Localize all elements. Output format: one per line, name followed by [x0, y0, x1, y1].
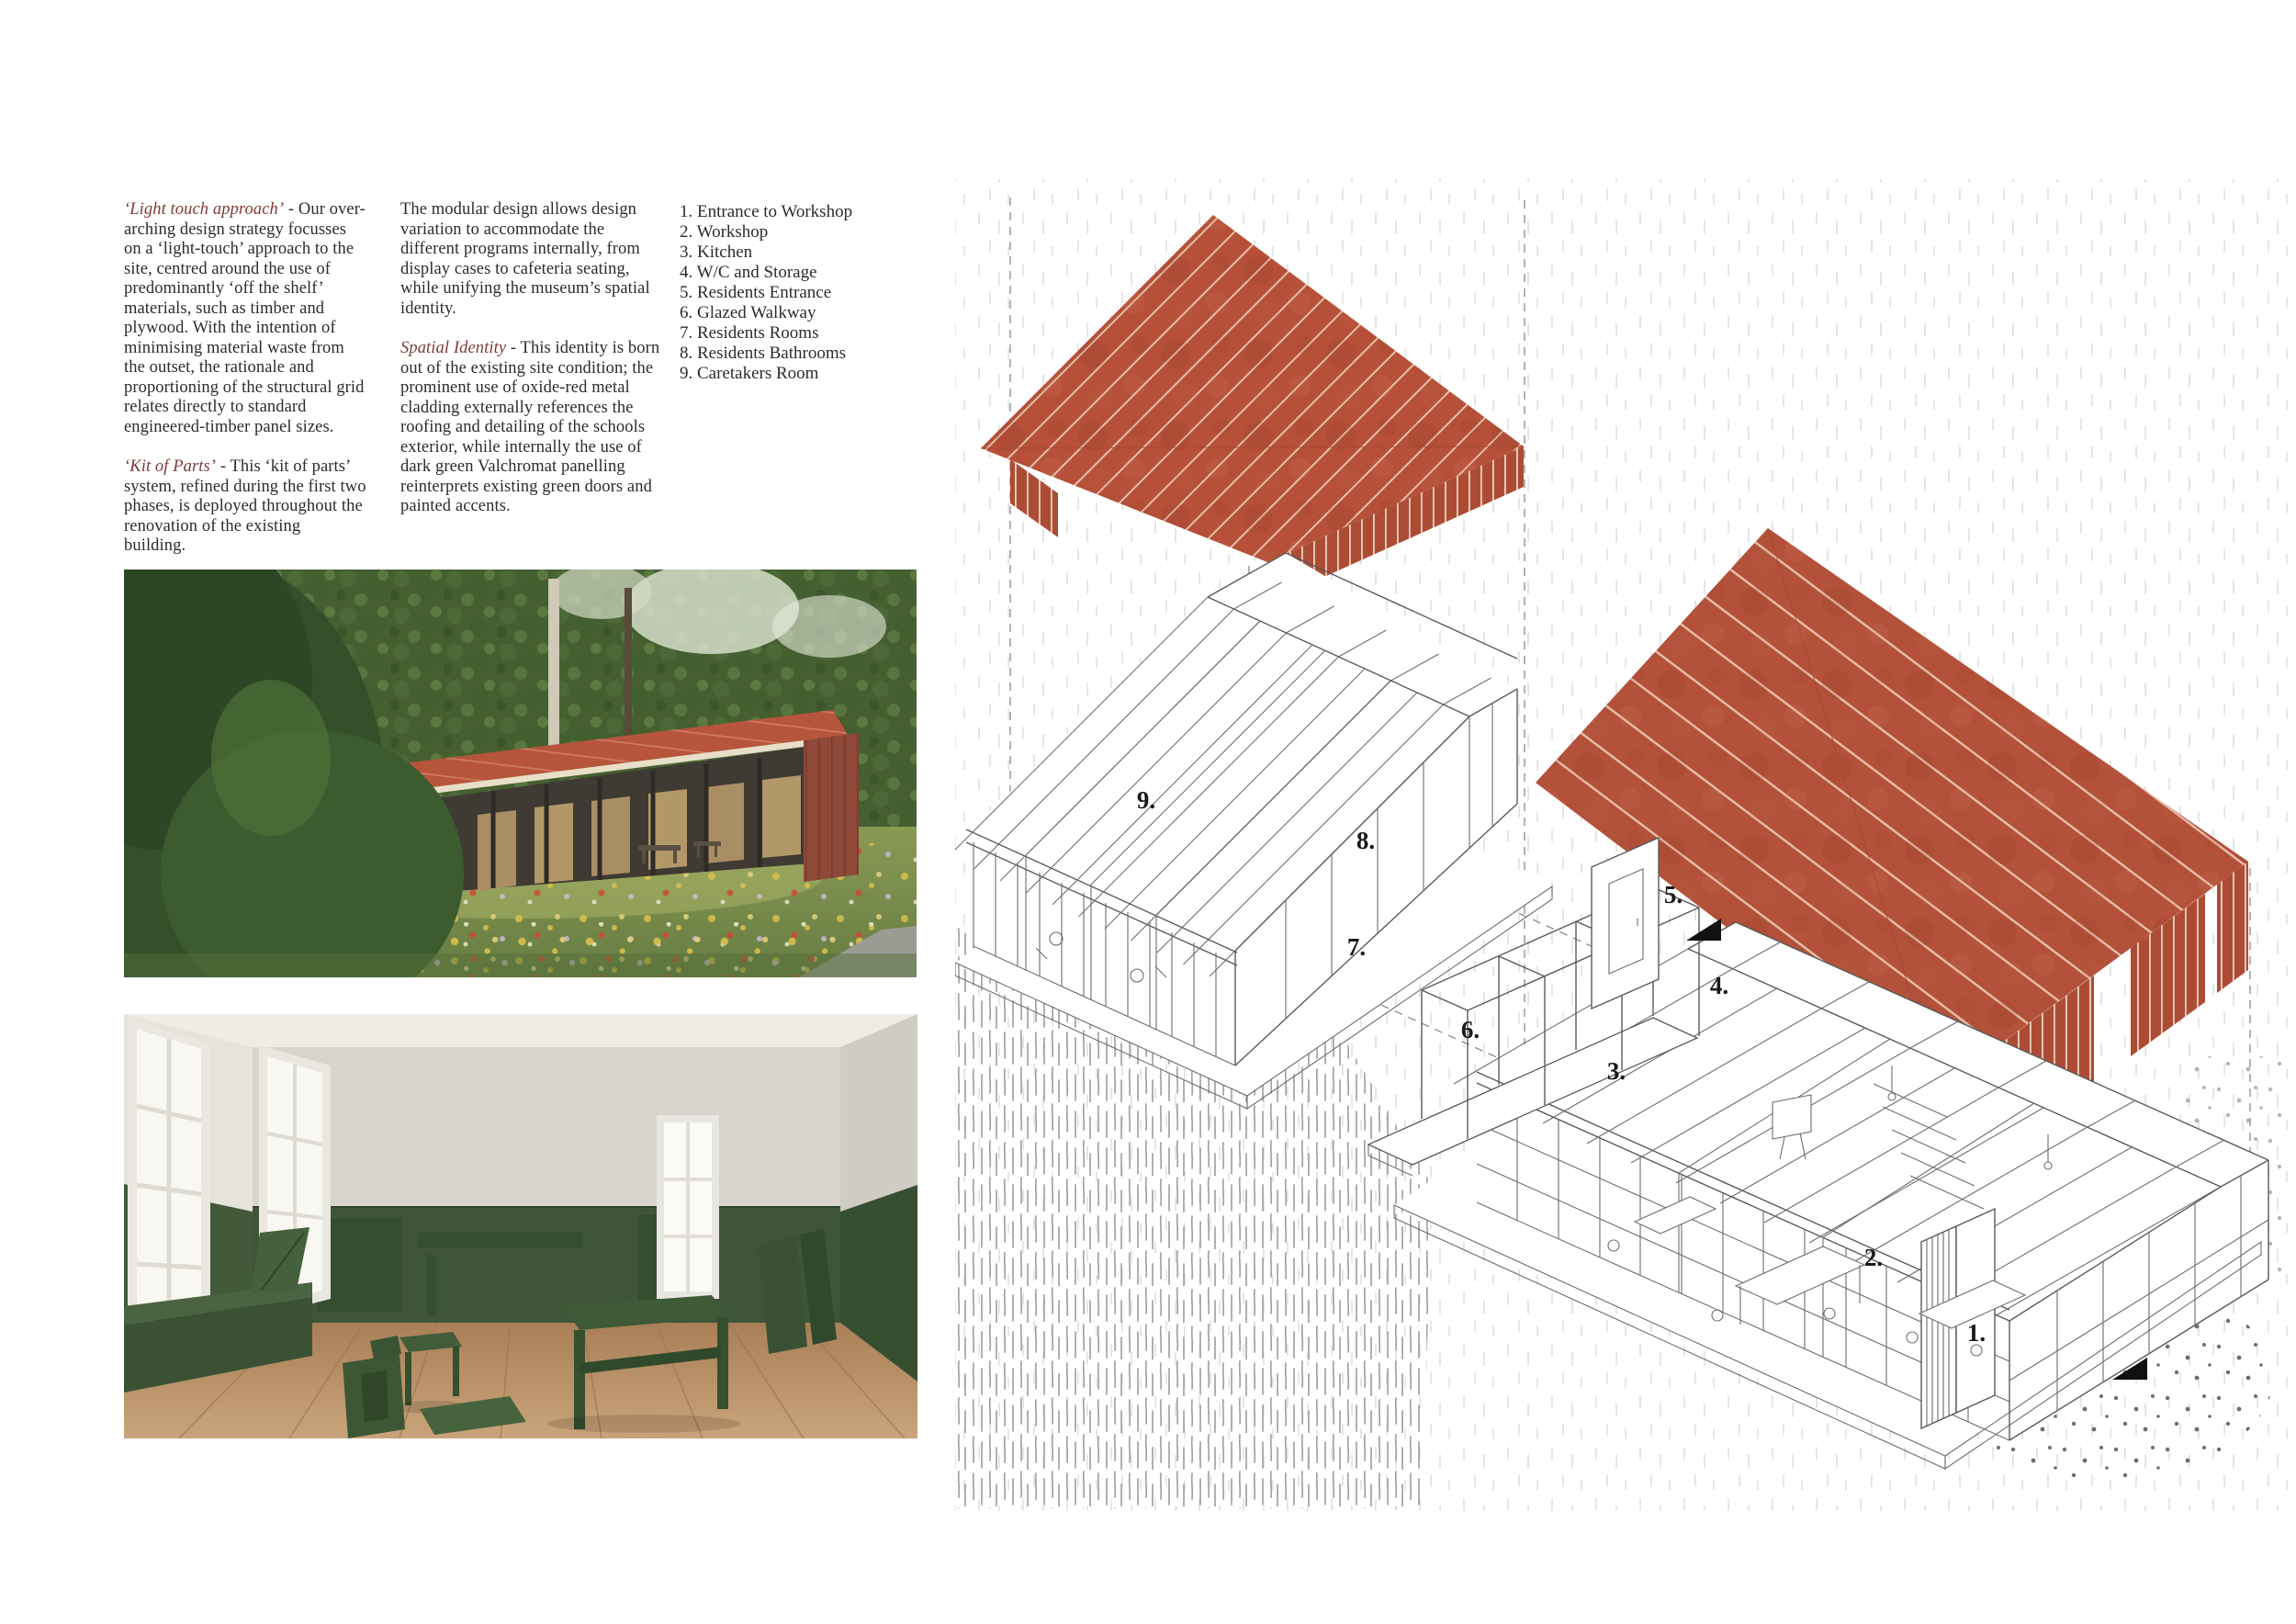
label-entrance-workshop: 1.: [1967, 1319, 1986, 1347]
back-window: [657, 1115, 719, 1299]
paragraph-lead: Spatial Identity: [400, 339, 506, 357]
birch-trunk: [548, 579, 559, 767]
paragraph-body: - This identity is born out of the exist…: [400, 339, 659, 515]
label-residents-rooms: 7.: [1347, 933, 1366, 961]
site-render-graphic: [124, 570, 917, 977]
legend-item: 7. Residents Rooms: [680, 323, 928, 344]
paragraph-lead: ‘Light touch approach’: [124, 200, 284, 219]
paragraph-body: - Our over-arching design strategy focus…: [124, 200, 366, 436]
legend-item: 5. Residents Entrance: [680, 283, 928, 303]
paragraph-body: The modular design allows design variati…: [400, 200, 650, 318]
legend-item: 9. Caretakers Room: [680, 364, 928, 384]
intro-paragraph: ‘Kit of Parts’ - This ‘kit of parts’ sys…: [124, 457, 366, 557]
intro-column-2: The modular design allows design variati…: [400, 200, 665, 537]
label-residents-entrance: 5.: [1664, 881, 1683, 908]
label-workshop: 2.: [1864, 1244, 1883, 1271]
room-legend: 1. Entrance to Workshop 2. Workshop 3. K…: [680, 202, 928, 384]
label-caretakers-room: 9.: [1137, 786, 1155, 814]
intro-paragraph: Spatial Identity - This identity is born…: [400, 339, 665, 517]
ceiling: [124, 1014, 917, 1047]
paragraph-lead: ‘Kit of Parts’: [124, 457, 216, 476]
tree-trunk: [625, 588, 632, 744]
site-render-photo: [124, 570, 917, 977]
leaning-panels: [758, 1229, 837, 1354]
legend-item: 1. Entrance to Workshop: [680, 202, 928, 222]
residents-entrance-panel: [1592, 838, 1659, 1009]
presentation-board: ‘Light touch approach’ - Our over-archin…: [0, 0, 2296, 1624]
intro-column-1: ‘Light touch approach’ - Our over-archin…: [124, 200, 366, 577]
intro-paragraph: ‘Light touch approach’ - Our over-archin…: [124, 200, 366, 437]
legend-item: 2. Workshop: [680, 222, 928, 242]
legend-item: 6. Glazed Walkway: [680, 303, 928, 323]
label-residents-bathrooms: 8.: [1356, 827, 1375, 854]
legend-item: 3. Kitchen: [680, 242, 928, 263]
axonometric-panel: 9. 8. 7. 6. 5. 4. 3. 2. 1.: [955, 179, 2296, 1511]
legend-item: 8. Residents Bathrooms: [680, 344, 928, 364]
label-wc-storage: 4.: [1710, 972, 1728, 999]
interior-render-photo: [124, 1014, 917, 1438]
label-glazed-walkway: 6.: [1461, 1016, 1480, 1043]
interior-render-graphic: [124, 1014, 917, 1438]
legend-item: 4. W/C and Storage: [680, 263, 928, 283]
axonometric-drawing: 9. 8. 7. 6. 5. 4. 3. 2. 1.: [955, 179, 2296, 1511]
oxide-end-wall: [804, 733, 859, 882]
intro-paragraph: The modular design allows design variati…: [400, 200, 665, 319]
label-kitchen: 3.: [1607, 1057, 1626, 1085]
